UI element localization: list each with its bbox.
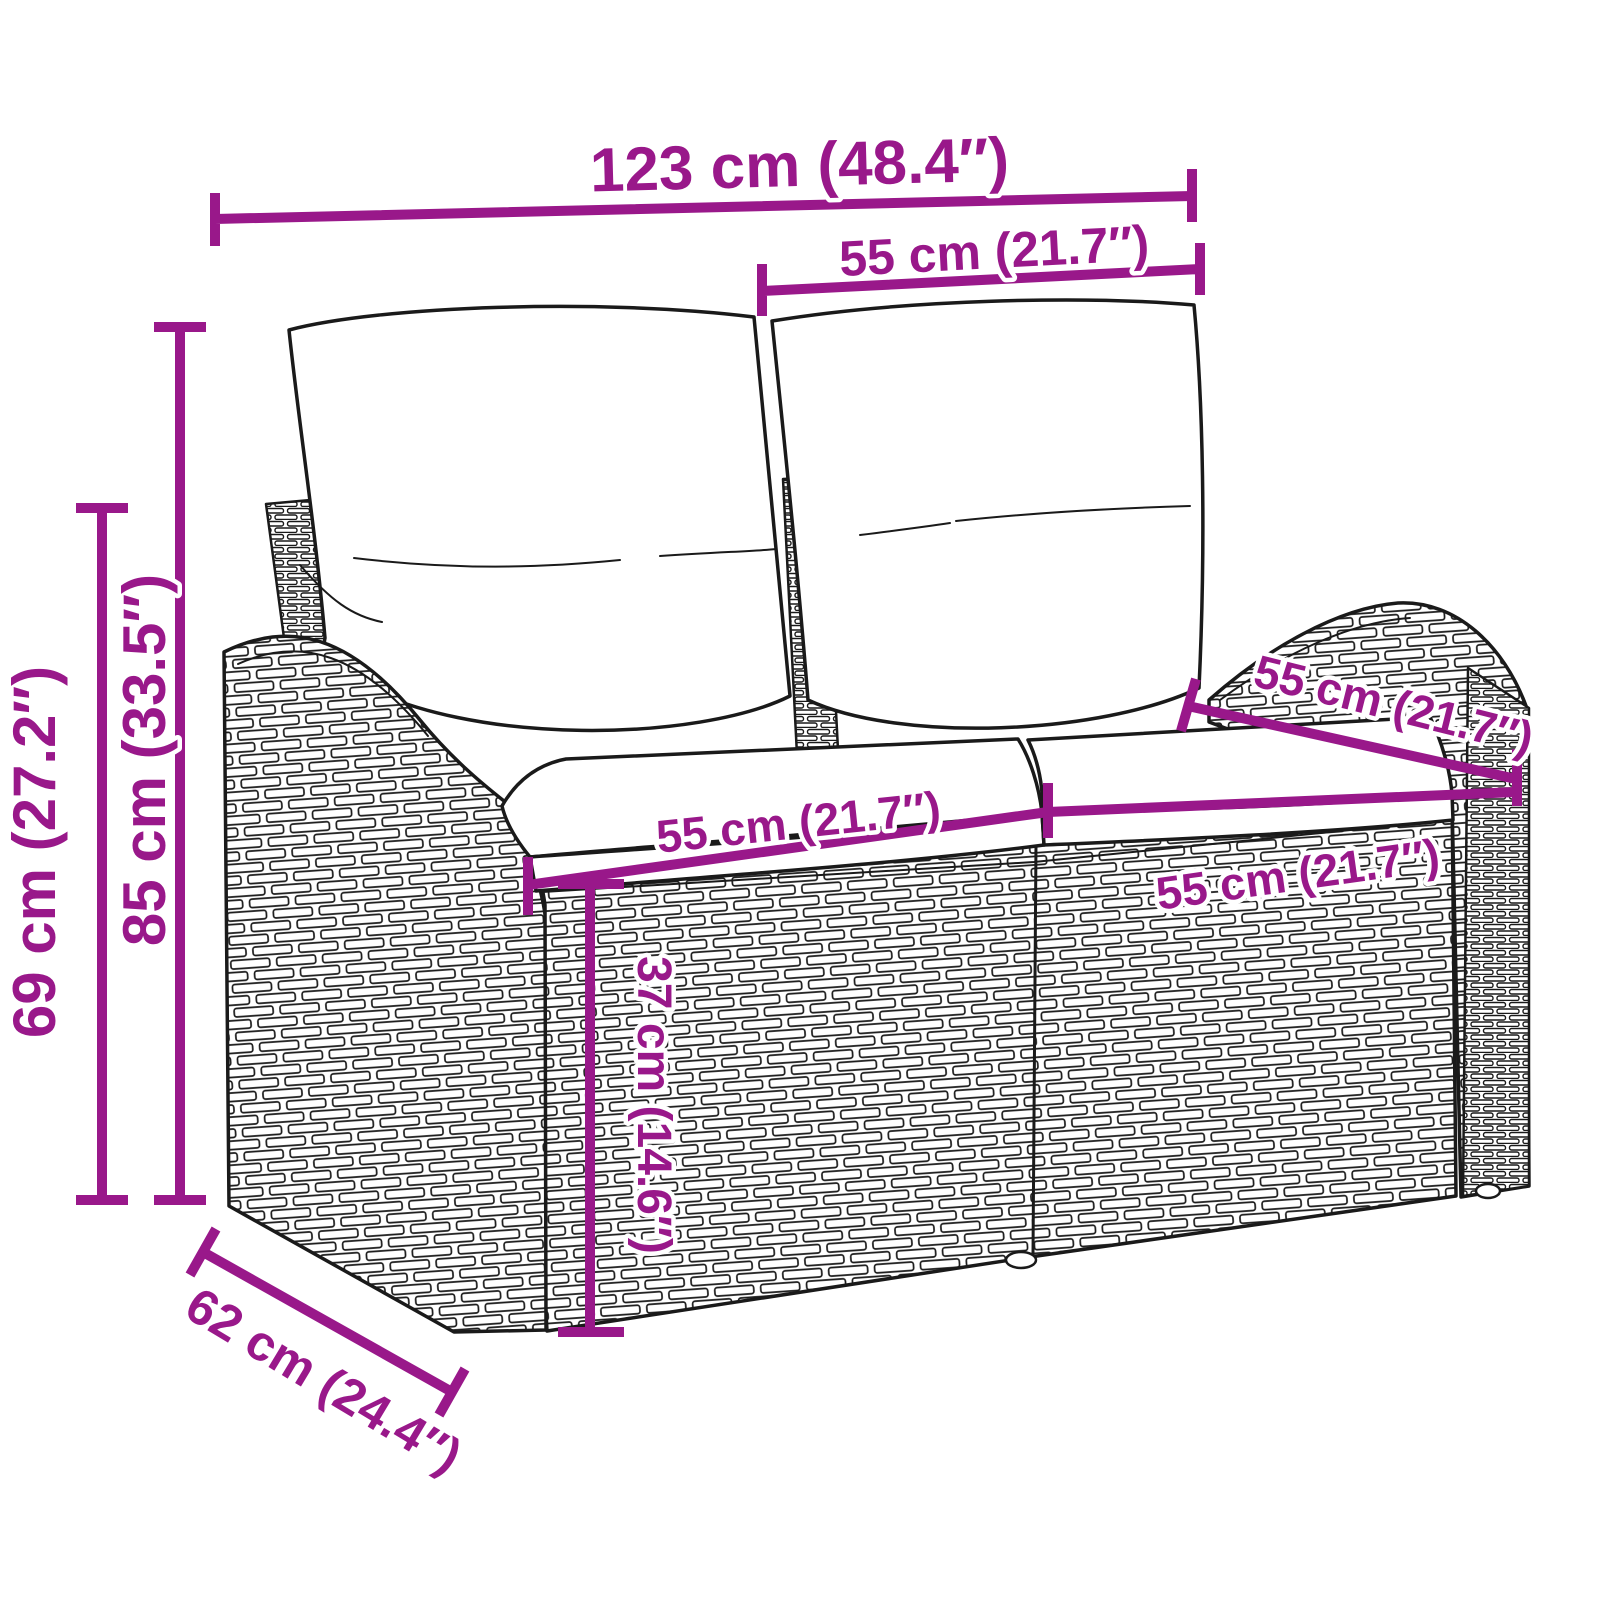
dimension-label-arm-height: 69 cm (27.2″) — [1, 666, 68, 1038]
back-cushion-right — [772, 300, 1203, 728]
dimension-label-seat-height: 37 cm (14.6″) — [627, 956, 680, 1254]
dimension-arm-height: 69 cm (27.2″) — [1, 508, 128, 1200]
sofa-foot — [1006, 1252, 1036, 1268]
dimension-label-total-width: 123 cm (48.4″) — [589, 126, 1010, 206]
dimension-label-total-height: 85 cm (33.5″) — [111, 574, 178, 946]
sofa-foot — [1476, 1184, 1500, 1198]
diagram-canvas: 123 cm (48.4″) 55 cm (21.7″) 85 cm (33.5… — [0, 0, 1600, 1600]
dimension-total-height: 85 cm (33.5″) — [111, 327, 206, 1200]
product-dimension-diagram: 123 cm (48.4″) 55 cm (21.7″) 85 cm (33.5… — [0, 0, 1600, 1600]
armrest-left — [224, 636, 546, 1332]
